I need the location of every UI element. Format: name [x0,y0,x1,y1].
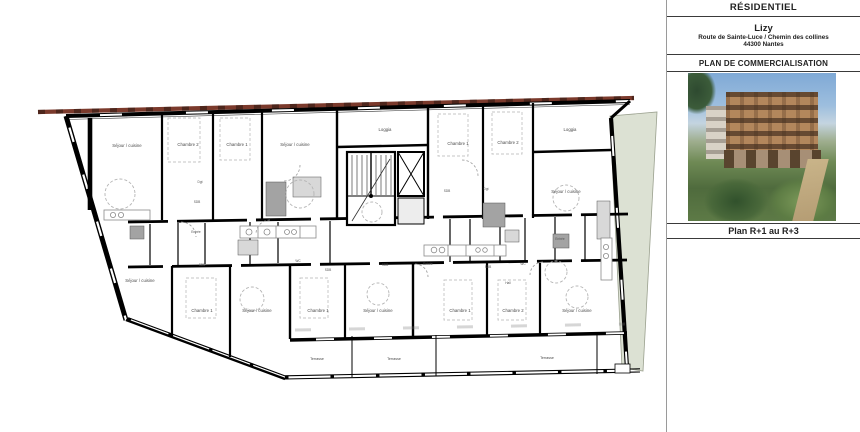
small-label: Entrée [555,237,565,241]
small-label: SDB [382,263,389,267]
small-label: Hall [505,281,511,285]
room-label: Chambre 2 [497,140,519,145]
loggia-label: Loggia [564,127,578,132]
title-block-doc-title: PLAN DE COMMERCIALISATION [667,55,860,72]
floor-plan: Séjour / cuisineChambre 2Chambre 1Séjour… [0,0,665,432]
building-photo [688,73,836,221]
room-label: Séjour / cuisine [242,308,272,313]
building-envelope [66,101,630,379]
room-label: Chambre 1 [226,142,248,147]
room-label: Chambre 1 [447,141,469,146]
project-name: Lizy [754,23,772,34]
project-address-line2: 44300 Nantes [743,41,783,49]
room-label: Chambre 2 [502,308,524,313]
floor-plan-svg: Séjour / cuisineChambre 2Chambre 1Séjour… [0,0,665,432]
title-block-empty-row [667,239,860,431]
doc-title: PLAN DE COMMERCIALISATION [699,59,828,68]
title-block-header: RÉSIDENTIEL [667,0,860,17]
room-label: Séjour / cuisine [125,278,155,283]
title-block-project: Lizy Route de Sainte-Luce / Chemin des c… [667,17,860,55]
loggia-label: Loggia [379,127,393,132]
small-label: SDB [199,263,206,267]
room-label: Chambre 1 [449,308,471,313]
small-label: SDB [194,200,201,204]
segment-label: RÉSIDENTIEL [730,2,797,13]
room-label: Séjour / cuisine [562,308,592,313]
project-address-line1: Route de Sainte-Luce / Chemin des collin… [698,34,829,42]
interior-walls [128,103,628,357]
terraces [126,318,640,379]
title-block-caption: Plan R+1 au R+3 [667,224,860,239]
room-label: Chambre 1 [191,308,213,313]
small-label: Dgt [484,187,489,191]
room-label: Séjour / cuisine [112,143,142,148]
room-label: Séjour / cuisine [363,308,393,313]
small-label: SDB [444,189,451,193]
room-label: Séjour / cuisine [551,189,581,194]
commercialisation-plan-page: Séjour / cuisineChambre 2Chambre 1Séjour… [0,0,860,432]
small-label: WC [295,259,301,263]
terrace-label: Terrasse [540,356,554,360]
small-label: Entrée [423,262,433,266]
small-label: SDB [325,268,332,272]
room-label: Séjour / cuisine [280,142,310,147]
small-label: SDB [485,265,492,269]
room-label: Chambre 1 [307,308,329,313]
floor-range-caption: Plan R+1 au R+3 [728,226,799,236]
small-label: Entrée [191,230,201,234]
terrace-label: Terrasse [387,357,401,361]
elevator [398,152,424,224]
photo-building [726,92,818,159]
title-block: RÉSIDENTIEL Lizy Route de Sainte-Luce / … [666,0,860,432]
terrace-label: Terrasse [310,357,324,361]
room-label: Chambre 2 [177,142,199,147]
title-block-photo-row [667,72,860,224]
stair-core [347,152,395,225]
small-label: WC [520,262,526,266]
small-label: Dgt [198,180,203,184]
